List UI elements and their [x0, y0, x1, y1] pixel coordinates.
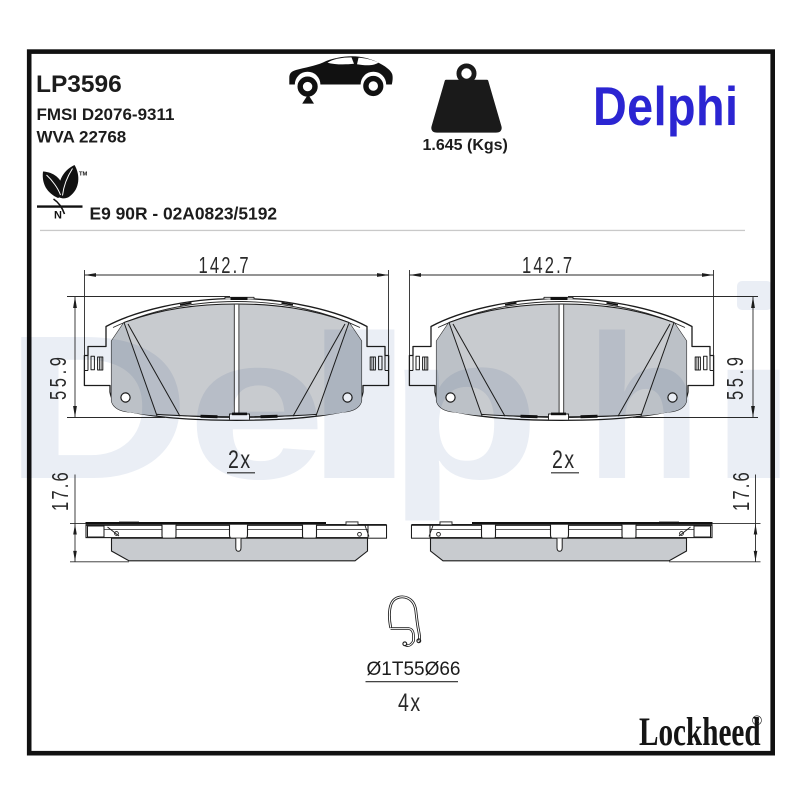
- svg-text:h: h: [586, 293, 701, 522]
- svg-text:FMSI D2076-9311: FMSI D2076-9311: [37, 105, 175, 124]
- svg-text:1.645 (Kgs): 1.645 (Kgs): [423, 137, 508, 154]
- svg-text:142.7: 142.7: [522, 253, 574, 278]
- svg-text:ı: ı: [701, 292, 800, 521]
- svg-text:4x: 4x: [398, 689, 422, 717]
- svg-text:Delphi: Delphi: [593, 75, 738, 136]
- svg-text:Lockheed: Lockheed: [639, 710, 761, 755]
- svg-text:Ø1T55Ø66: Ø1T55Ø66: [367, 659, 461, 680]
- svg-text:®: ®: [752, 713, 762, 728]
- svg-text:D: D: [4, 293, 191, 522]
- svg-text:LP3596: LP3596: [36, 71, 122, 98]
- svg-text:N: N: [54, 210, 62, 222]
- svg-text:E9 90R - 02A0823/5192: E9 90R - 02A0823/5192: [90, 204, 278, 224]
- svg-text:WVA 22768: WVA 22768: [37, 128, 127, 147]
- svg-text:142.7: 142.7: [199, 253, 251, 278]
- svg-text:p: p: [388, 294, 540, 522]
- svg-text:TM: TM: [79, 172, 88, 178]
- svg-text:2x: 2x: [552, 446, 576, 474]
